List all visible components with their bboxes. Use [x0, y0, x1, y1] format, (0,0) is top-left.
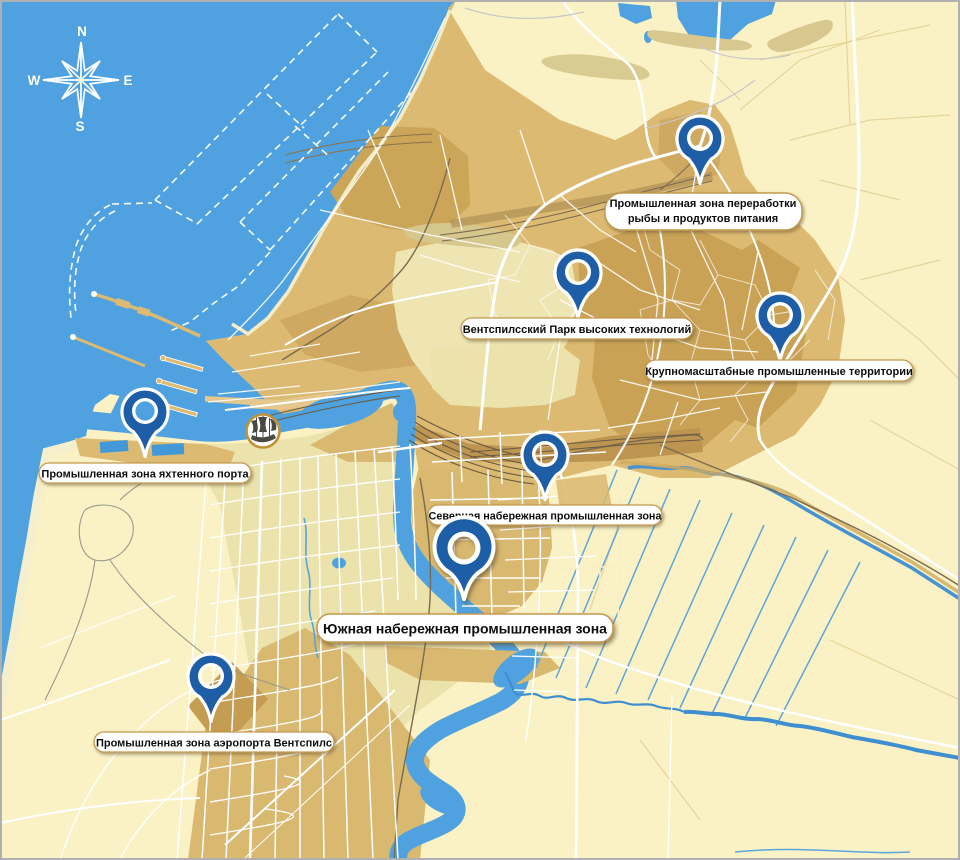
svg-text:Крупномасштабные промышленные: Крупномасштабные промышленные территории	[645, 366, 913, 378]
svg-text:E: E	[123, 73, 132, 88]
svg-text:Южная набережная промышленная: Южная набережная промышленная зона	[323, 621, 607, 637]
svg-text:Вентспилсский Парк высоких тех: Вентспилсский Парк высоких технологий	[463, 324, 692, 336]
svg-text:Промышленная зона аэропорта Ве: Промышленная зона аэропорта Вентспилс	[96, 738, 332, 750]
svg-text:N: N	[77, 24, 87, 39]
svg-text:Промышленная зона переработки: Промышленная зона переработки	[610, 198, 797, 210]
svg-text:рыбы и продуктов питания: рыбы и продуктов питания	[628, 213, 778, 225]
svg-text:Промышленная зона яхтенного по: Промышленная зона яхтенного порта	[41, 469, 249, 481]
svg-text:S: S	[75, 119, 84, 134]
svg-text:W: W	[28, 73, 41, 88]
